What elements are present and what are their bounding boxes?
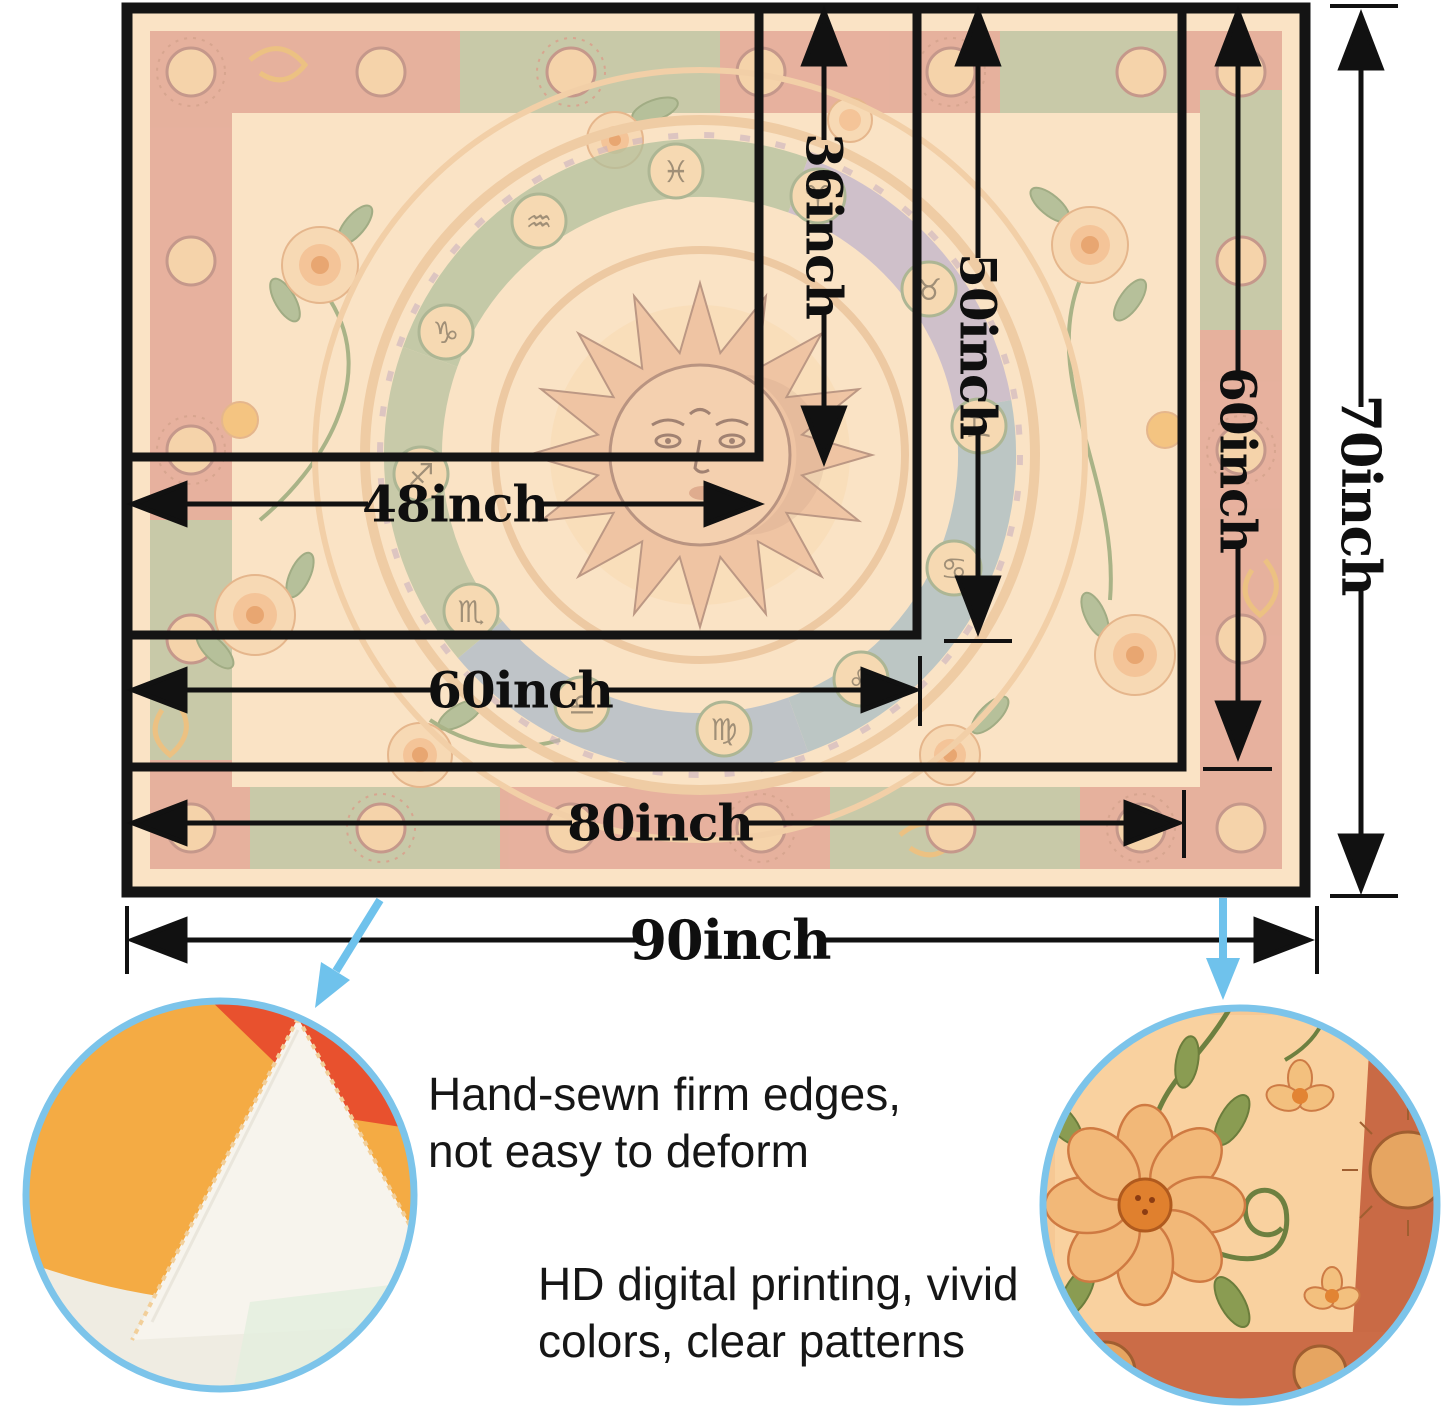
tapestry-art: ♈ ♉ ♊ ♋ ♌ ♍ ♎ ♏ ♐ ♑ ♒ ♓ <box>132 13 1300 887</box>
dim-label-36inch: 36inch <box>795 133 854 319</box>
diagram-canvas: ♈ ♉ ♊ ♋ ♌ ♍ ♎ ♏ ♐ ♑ ♒ ♓ <box>0 0 1445 1413</box>
dim-label-80inch: 80inch <box>567 794 753 853</box>
photo-wash-overlay <box>132 13 1300 887</box>
callout-arrow-right <box>1206 898 1240 1000</box>
dim-label-70inch: 70inch <box>1329 394 1393 596</box>
dim-label-60inch-width: 60inch <box>427 661 613 720</box>
pattern-big-flower <box>1045 1105 1245 1305</box>
detail-circle-edge <box>20 995 472 1413</box>
feature-text-hand-sewn: Hand-sewn firm edges, not easy to deform <box>428 1066 901 1180</box>
product-size-diagram: ♈ ♉ ♊ ♋ ♌ ♍ ♎ ♏ ♐ ♑ ♒ ♓ <box>0 0 1445 1413</box>
feature-text-line: colors, clear patterns <box>538 1313 1019 1370</box>
feature-text-line: not easy to deform <box>428 1123 901 1180</box>
dim-label-90inch: 90inch <box>629 908 831 972</box>
feature-text-hd-printing: HD digital printing, vivid colors, clear… <box>538 1256 1019 1370</box>
feature-text-line: Hand-sewn firm edges, <box>428 1066 901 1123</box>
dim-label-60inch-height: 60inch <box>1209 367 1268 553</box>
feature-text-line: HD digital printing, vivid <box>538 1256 1019 1313</box>
detail-circle-pattern <box>1035 986 1445 1412</box>
dim-label-48inch: 48inch <box>362 475 548 534</box>
dim-label-50inch: 50inch <box>949 253 1008 439</box>
callout-arrow-left <box>315 900 380 1008</box>
